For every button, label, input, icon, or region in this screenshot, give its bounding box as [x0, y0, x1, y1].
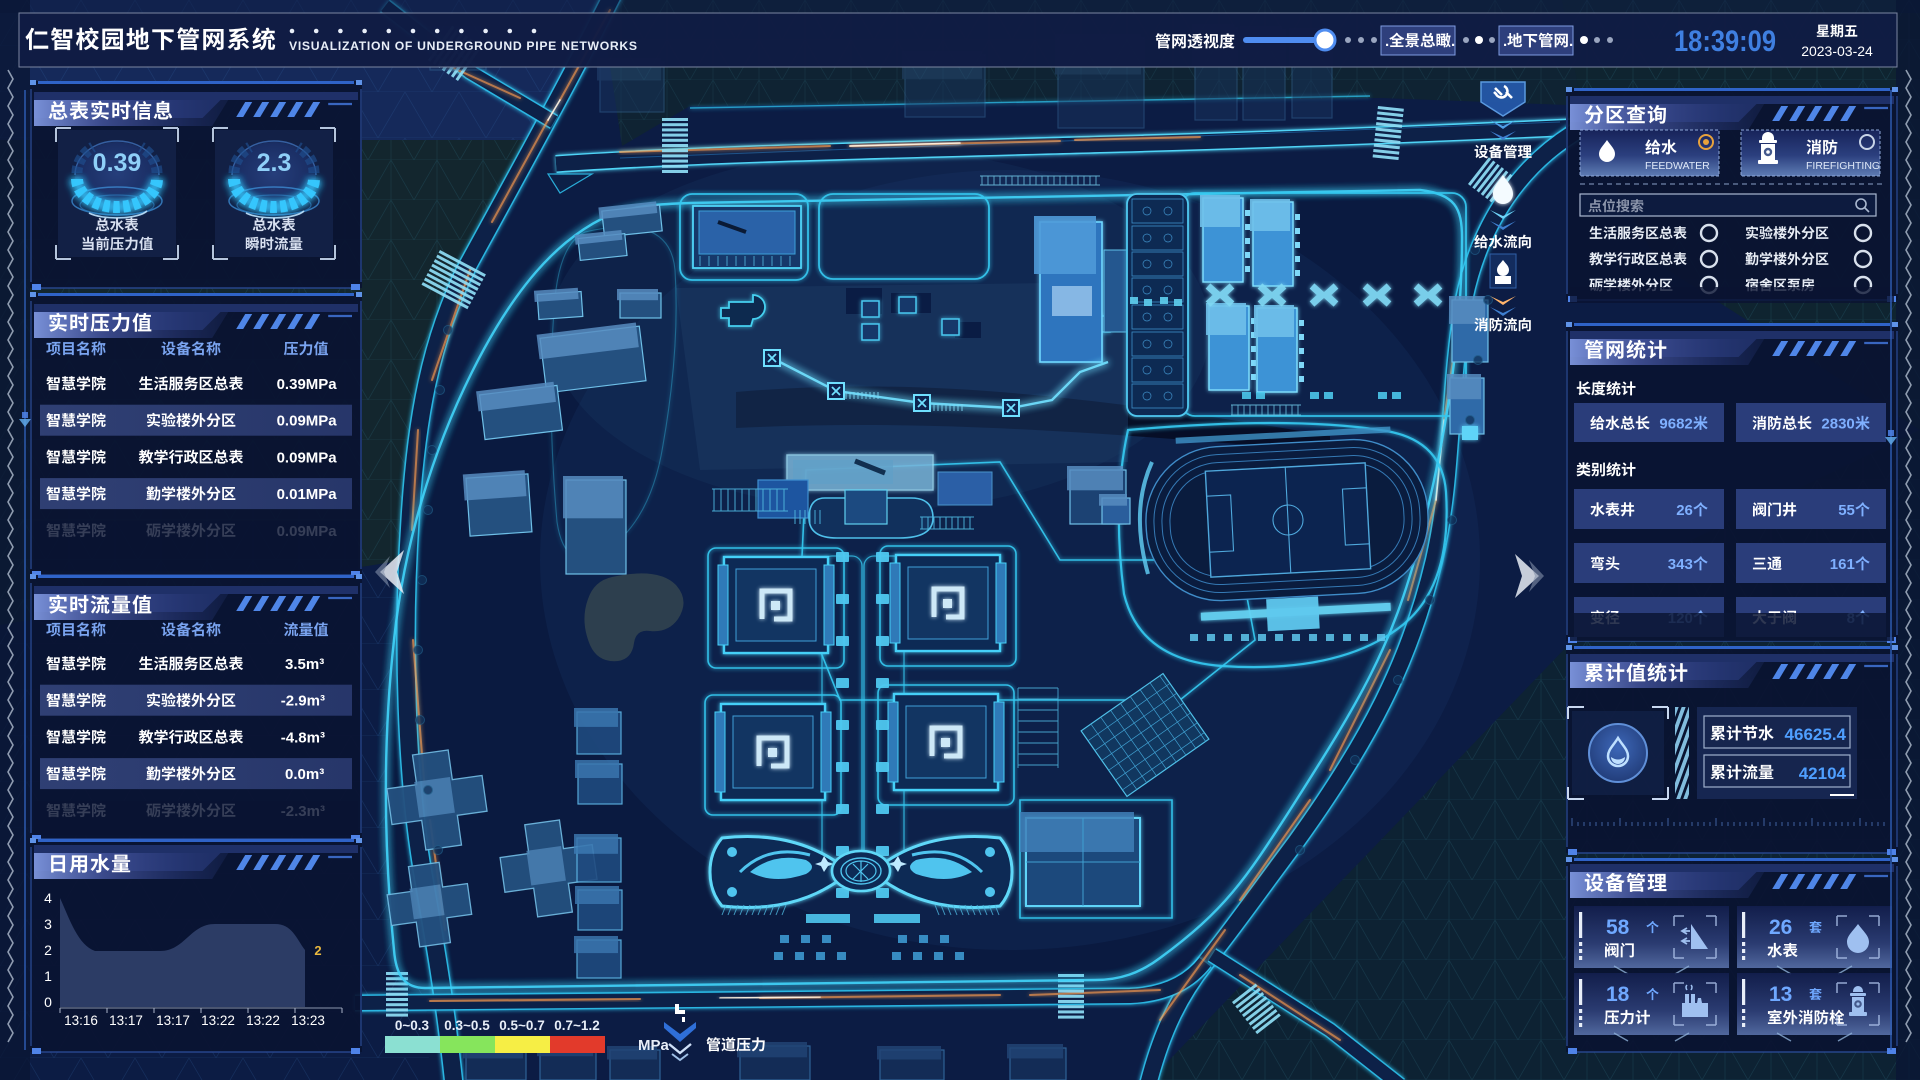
svg-text:.: . [1503, 33, 1507, 50]
svg-text:13: 13 [1769, 983, 1792, 1006]
svg-text:0.3~0.5: 0.3~0.5 [444, 1018, 490, 1033]
svg-text:0.5~0.7: 0.5~0.7 [499, 1018, 544, 1033]
svg-text:26: 26 [1769, 916, 1792, 939]
svg-text:2.3: 2.3 [257, 149, 292, 177]
svg-text:4: 4 [44, 890, 52, 906]
svg-text:9682: 9682 [1659, 416, 1692, 433]
svg-text:VISUALIZATION OF UNDERGROUND P: VISUALIZATION OF UNDERGROUND PIPE NETWOR… [289, 39, 638, 53]
svg-text:18: 18 [1606, 983, 1630, 1006]
svg-text:-4.8m³: -4.8m³ [281, 729, 325, 746]
svg-text:FIREFIGHTING: FIREFIGHTING [1806, 160, 1880, 172]
svg-text:2: 2 [314, 943, 321, 958]
svg-text:2830: 2830 [1821, 416, 1854, 433]
svg-text:0.01MPa: 0.01MPa [277, 486, 338, 503]
svg-text:2: 2 [44, 942, 52, 958]
svg-text:18:39:09: 18:39:09 [1674, 25, 1776, 58]
svg-text:3.5m³: 3.5m³ [285, 656, 324, 673]
svg-text:13:16: 13:16 [64, 1013, 98, 1028]
svg-text:0: 0 [44, 994, 52, 1010]
svg-text:1: 1 [44, 968, 52, 984]
svg-text:13:23: 13:23 [291, 1013, 325, 1028]
svg-text:13:17: 13:17 [109, 1013, 143, 1028]
svg-text:-2.9m³: -2.9m³ [281, 693, 325, 710]
svg-text:55: 55 [1838, 502, 1855, 519]
svg-text:0.09MPa: 0.09MPa [277, 413, 338, 430]
svg-text:.: . [1385, 33, 1389, 50]
svg-text:42104: 42104 [1799, 764, 1847, 783]
svg-text:0.39MPa: 0.39MPa [277, 376, 338, 393]
svg-text:13:22: 13:22 [201, 1013, 235, 1028]
svg-text:.: . [1451, 33, 1455, 50]
svg-text:0.0m³: 0.0m³ [285, 766, 324, 783]
svg-text:3: 3 [44, 916, 52, 932]
svg-text:.: . [1569, 33, 1573, 50]
svg-text:0.39: 0.39 [93, 149, 142, 177]
svg-text:46625.4: 46625.4 [1785, 725, 1847, 744]
svg-text:58: 58 [1606, 916, 1630, 939]
svg-text:13:22: 13:22 [246, 1013, 280, 1028]
svg-text:0~0.3: 0~0.3 [395, 1018, 430, 1033]
svg-text:MPa: MPa [638, 1037, 670, 1054]
svg-text:0.09MPa: 0.09MPa [277, 449, 338, 466]
svg-text:26: 26 [1676, 502, 1693, 519]
svg-text:0.7~1.2: 0.7~1.2 [554, 1018, 599, 1033]
svg-text:343: 343 [1668, 556, 1693, 573]
svg-text:13:17: 13:17 [156, 1013, 190, 1028]
svg-text:2023-03-24: 2023-03-24 [1801, 43, 1873, 59]
svg-text:FEEDWATER: FEEDWATER [1645, 160, 1710, 172]
svg-text:161: 161 [1830, 556, 1855, 573]
